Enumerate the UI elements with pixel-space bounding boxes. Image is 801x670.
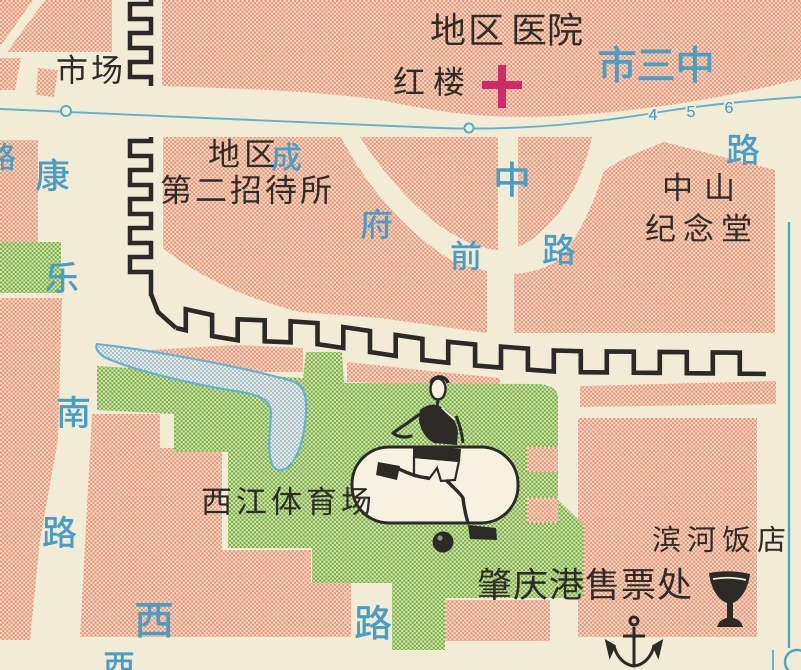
svg-text:5: 5	[687, 104, 696, 121]
svg-text:6: 6	[725, 100, 734, 117]
svg-text:4: 4	[649, 107, 658, 124]
